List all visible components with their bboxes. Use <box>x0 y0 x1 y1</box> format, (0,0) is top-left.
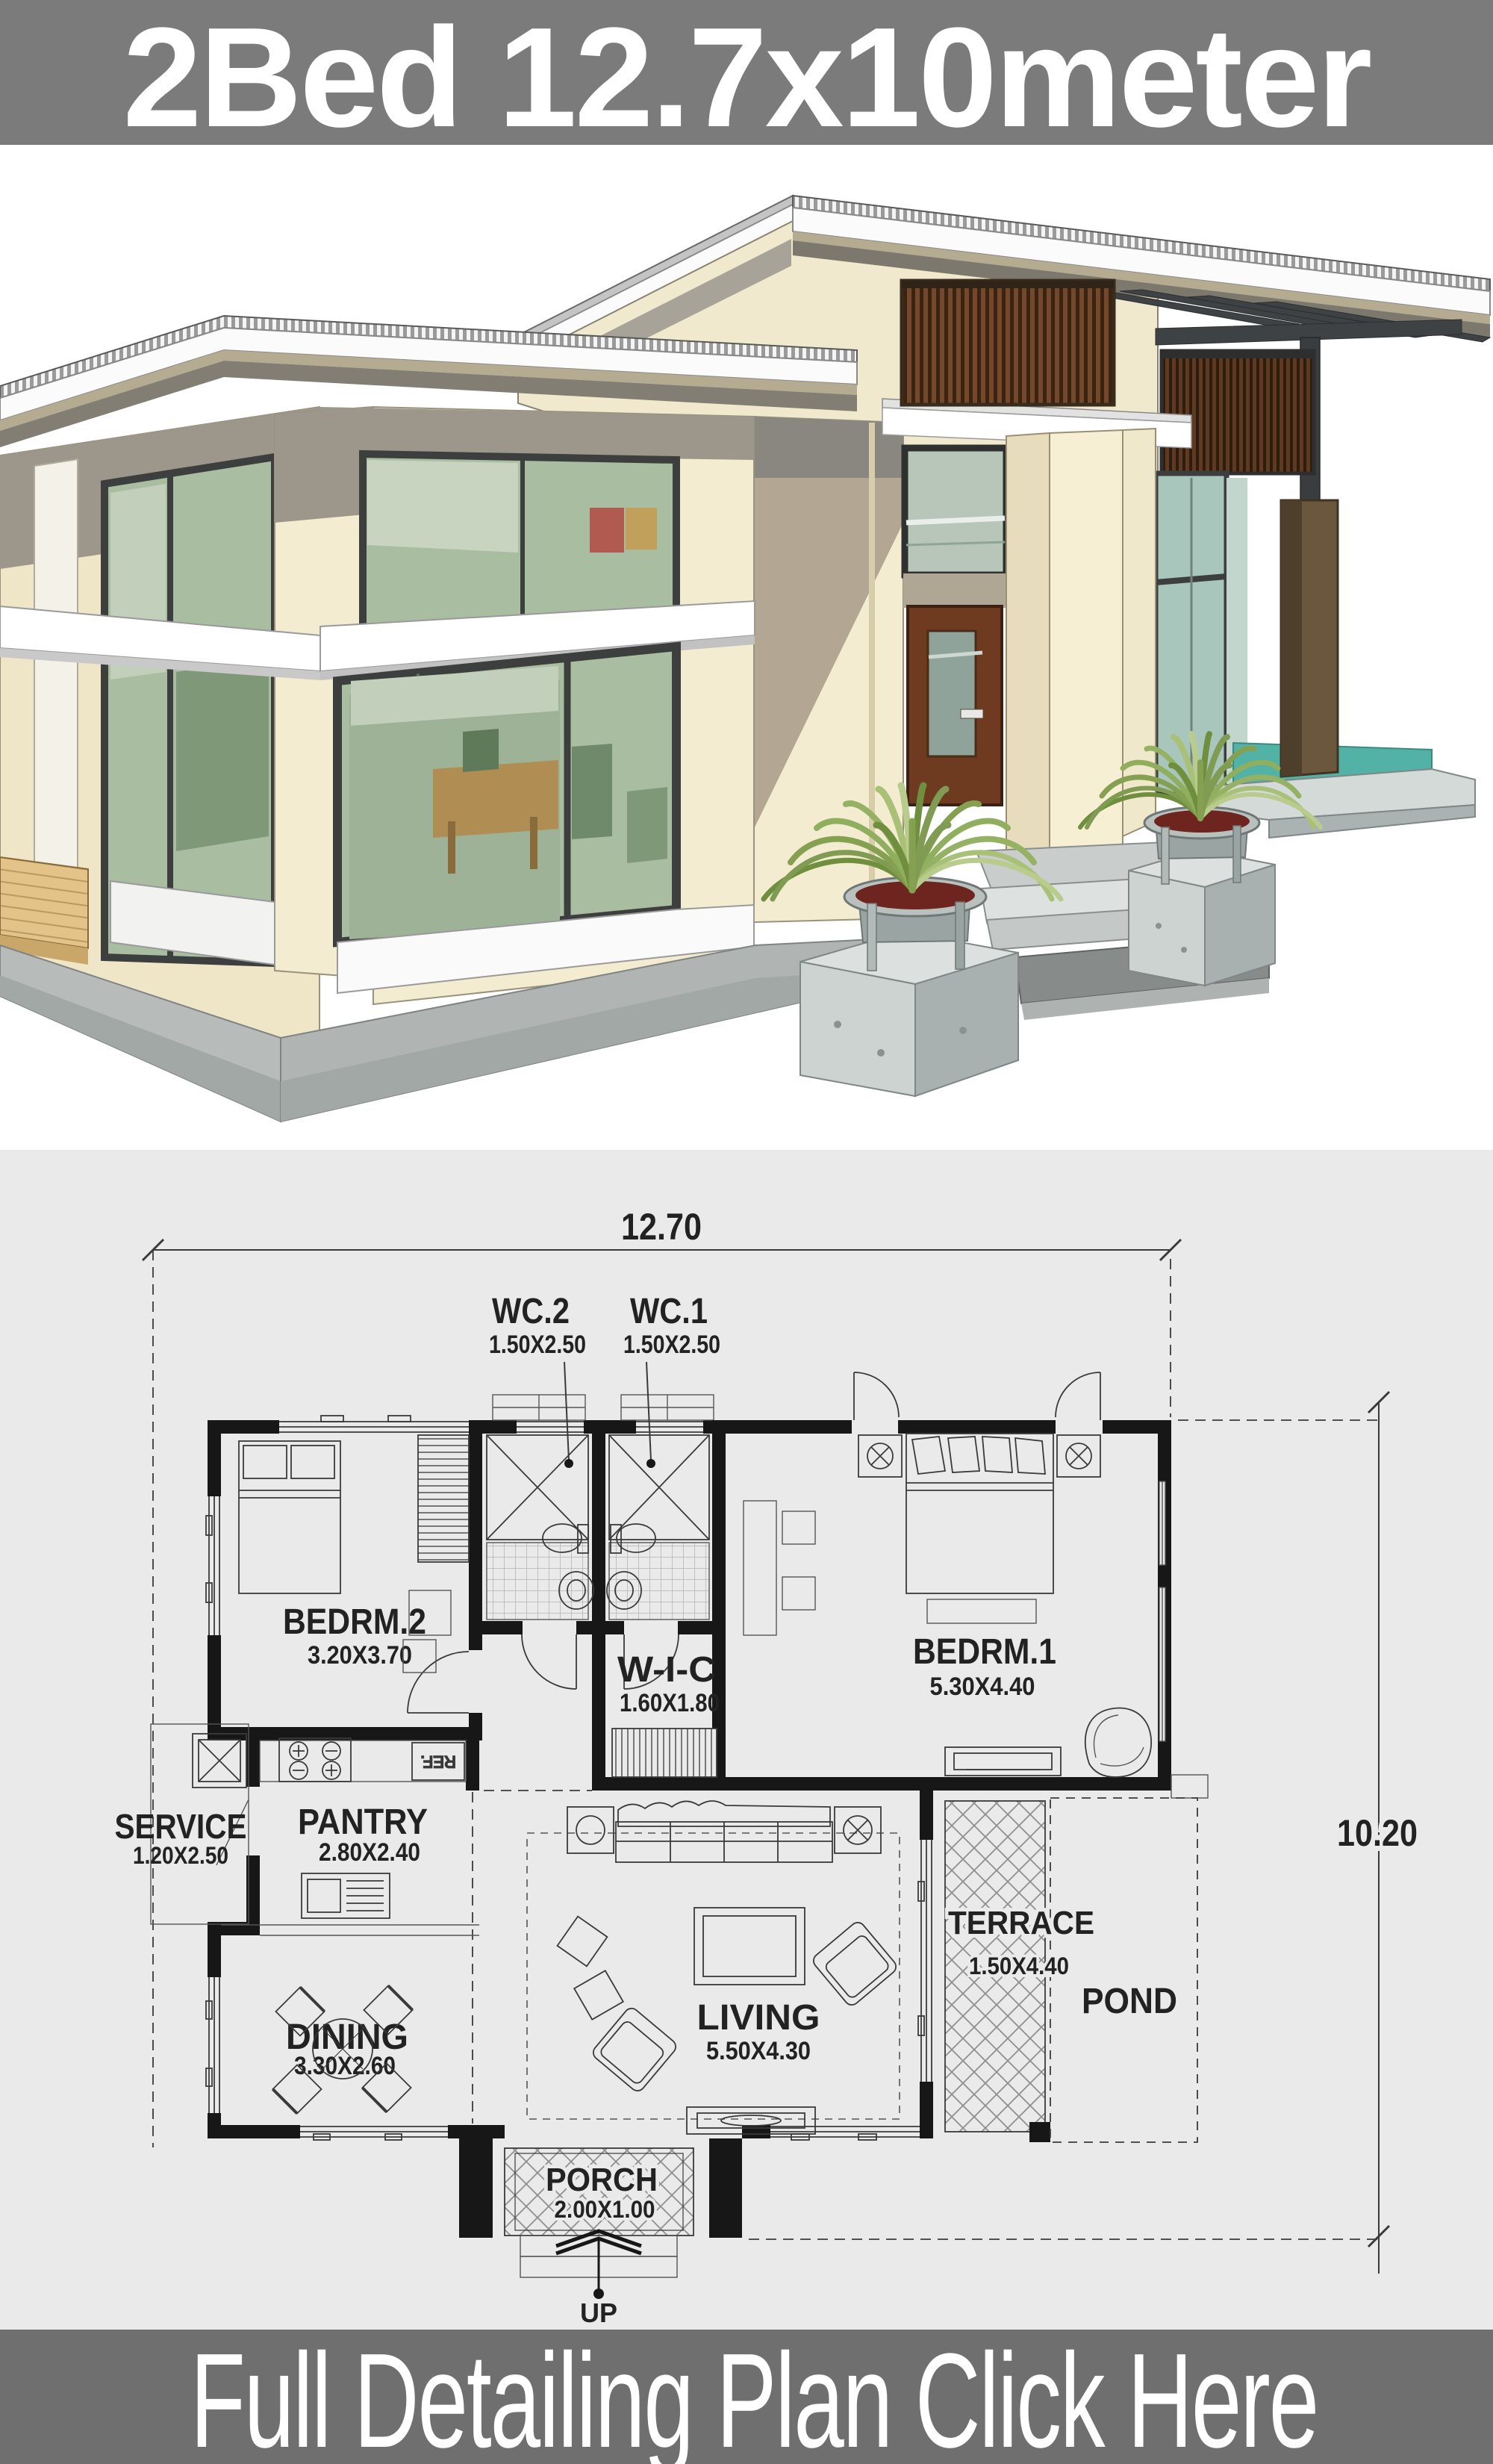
svg-text:W-I-C: W-I-C <box>617 1650 716 1690</box>
svg-text:1.50X4.40: 1.50X4.40 <box>969 1953 1069 1979</box>
svg-text:WC.1: WC.1 <box>630 1292 708 1331</box>
svg-text:5.30X4.40: 5.30X4.40 <box>930 1673 1035 1701</box>
svg-text:5.50X4.30: 5.50X4.30 <box>706 2037 811 2065</box>
svg-text:LIVING: LIVING <box>697 1998 820 2038</box>
svg-text:PORCH: PORCH <box>546 2162 658 2198</box>
svg-text:TERRACE: TERRACE <box>948 1905 1094 1941</box>
svg-text:PANTRY: PANTRY <box>298 1802 428 1842</box>
svg-text:UP: UP <box>580 2297 617 2328</box>
svg-text:REF.: REF. <box>420 1752 456 1771</box>
svg-text:12.70: 12.70 <box>621 1206 702 1248</box>
svg-text:1.60X1.80: 1.60X1.80 <box>620 1689 720 1717</box>
svg-text:WC.2: WC.2 <box>492 1292 570 1331</box>
svg-text:10.20: 10.20 <box>1337 1812 1418 1854</box>
svg-text:POND: POND <box>1082 1982 1177 2021</box>
svg-text:3.20X3.70: 3.20X3.70 <box>308 1641 412 1670</box>
svg-text:BEDRM.2: BEDRM.2 <box>283 1602 426 1642</box>
svg-text:2.80X2.40: 2.80X2.40 <box>319 1838 420 1867</box>
svg-text:3.30X2.60: 3.30X2.60 <box>294 2052 396 2080</box>
svg-text:BEDRM.1: BEDRM.1 <box>913 1632 1056 1672</box>
svg-text:2.00X1.00: 2.00X1.00 <box>555 2196 655 2223</box>
svg-text:1.50X2.50: 1.50X2.50 <box>623 1331 720 1359</box>
svg-text:1.20X2.50: 1.20X2.50 <box>133 1842 228 1869</box>
svg-text:SERVICE: SERVICE <box>115 1807 247 1846</box>
svg-text:1.50X2.50: 1.50X2.50 <box>489 1331 586 1359</box>
